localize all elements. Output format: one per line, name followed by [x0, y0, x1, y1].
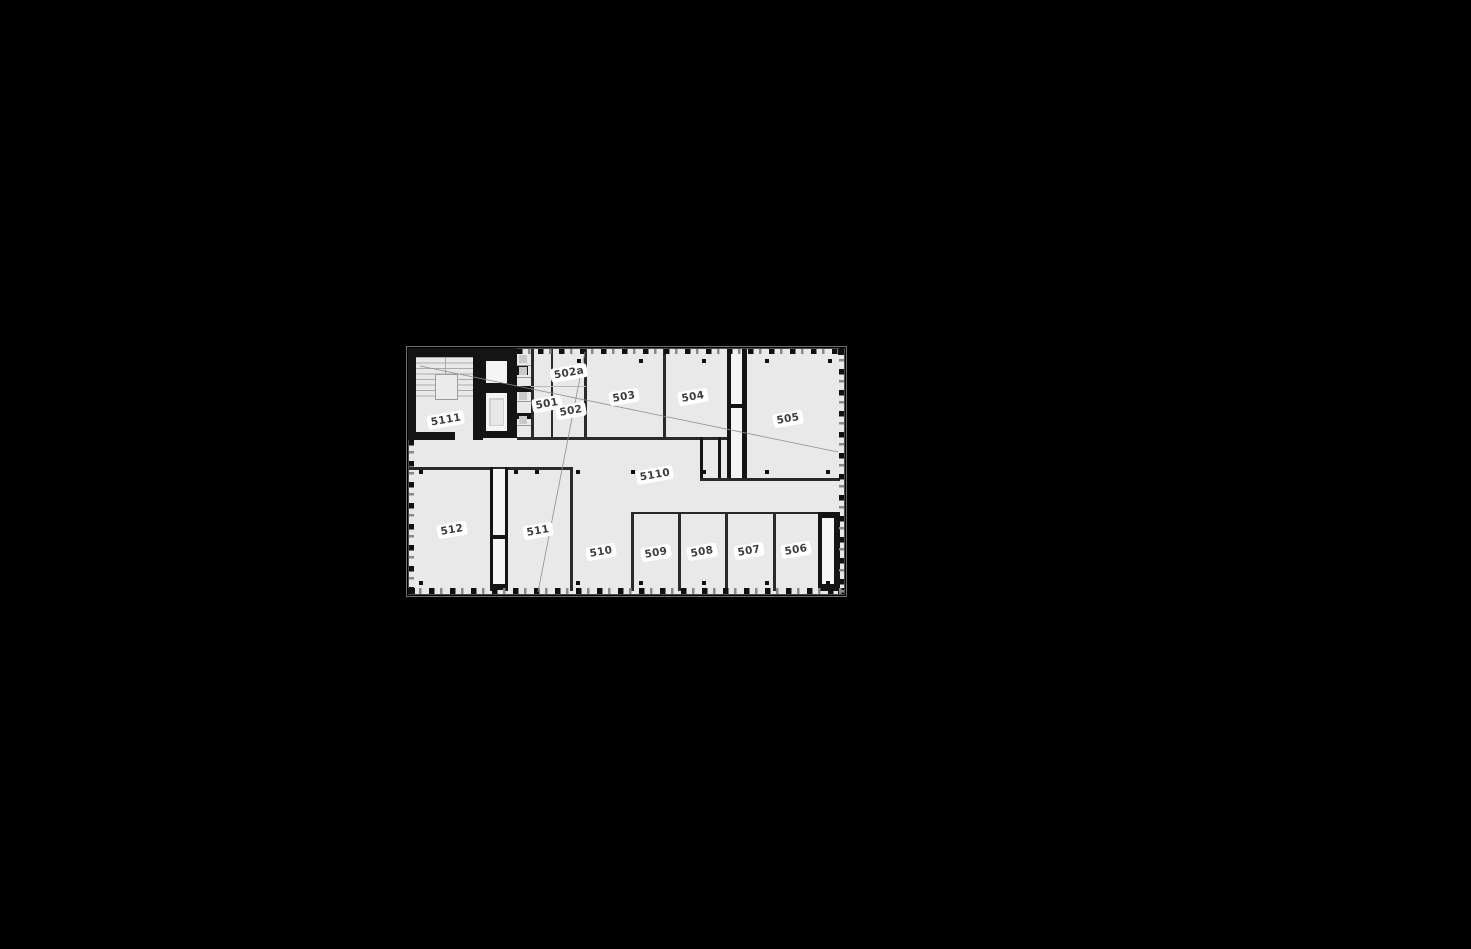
leader-line	[420, 366, 838, 452]
leader-line	[538, 352, 585, 592]
floor-plan: 5111 501 502 502a 503 504 505 5110 506 5…	[408, 348, 845, 595]
page-background: { "figure_type": "architectural-floor-pl…	[0, 0, 1471, 949]
leader-lines	[408, 348, 845, 595]
